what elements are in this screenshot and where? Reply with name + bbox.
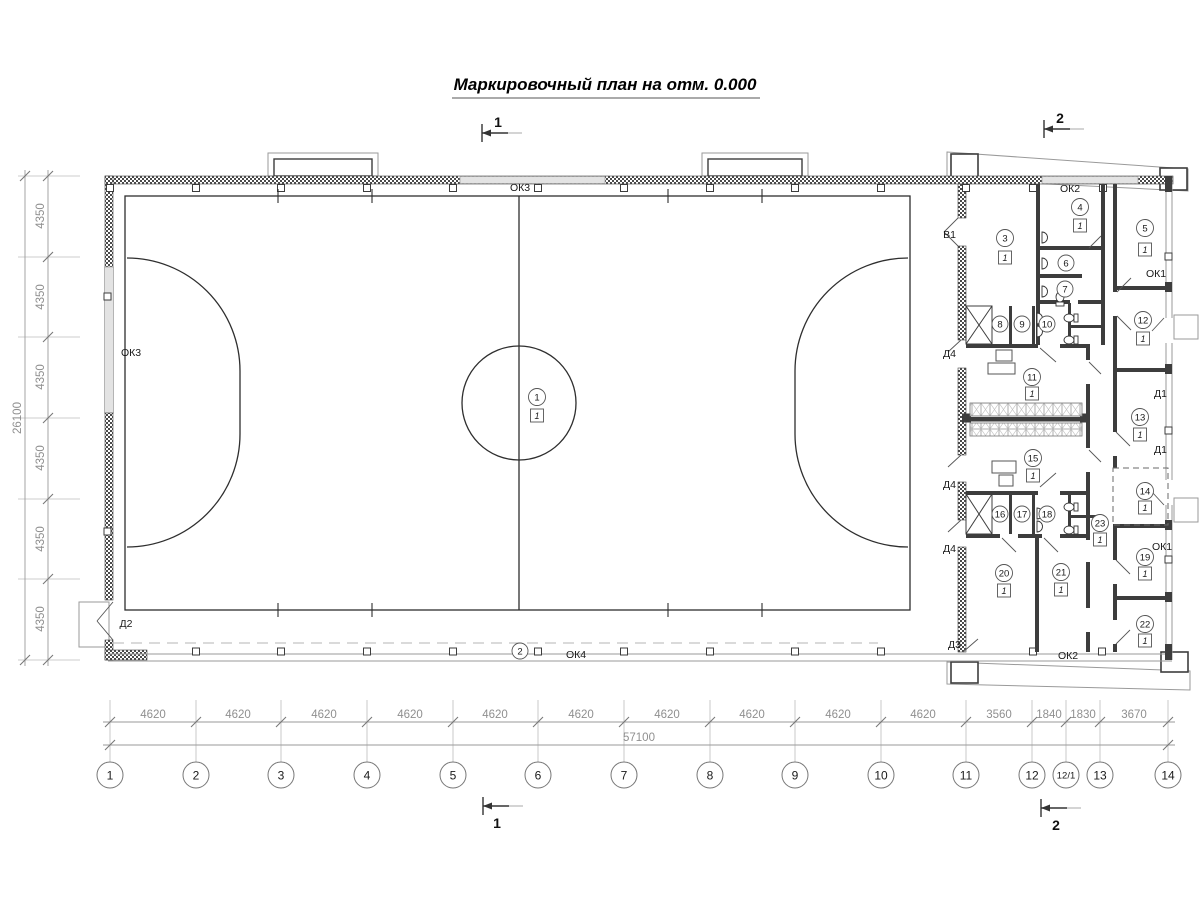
wall-right-pier [1165,176,1172,192]
room-number: 10 [1042,320,1053,331]
extension-lines-left [18,176,80,660]
room-number: 16 [995,510,1006,521]
dim-value: 4620 [225,709,251,721]
court-boundary [125,196,910,610]
label-d4: Д4 [943,479,956,491]
floor-type: 1 [1142,503,1147,513]
room-number: 1 [534,393,539,404]
entrance-canopy-2 [702,153,808,176]
opening-labels: ОК3 ОК3 ОК4 ОК2 ОК2 ОК1 ОК1 В1 Д2 Д3 Д4 … [120,182,1173,662]
room-number: 6 [1063,259,1068,270]
page-title: Маркировочный план на отм. 0.000 [454,75,757,94]
floor-type: 1 [1142,636,1147,646]
floor-type: 1 [1002,253,1007,263]
axis-14: 14 [1155,762,1181,788]
room-marker-8: 8 [992,316,1008,332]
room-number: 3 [1002,234,1007,245]
entrance-canopy-1-inner [274,159,372,176]
dim-value: 4350 [35,203,47,229]
axis-label: 2 [193,769,200,783]
room-number: 5 [1142,224,1147,235]
dim-value: 1830 [1070,709,1096,721]
room-number: 19 [1140,553,1151,564]
axis-label: 8 [707,769,714,783]
toilet [1064,336,1078,344]
axis-2: 2 [183,762,209,788]
label-d4: Д4 [943,543,956,555]
room-marker-21: 21 1 [1053,564,1070,597]
wall-right-pier [1165,644,1172,660]
dim-value: 3560 [986,709,1012,721]
label-ok4: ОК4 [566,649,586,661]
room-marker-6: 6 [1058,255,1074,271]
window-ok3-left [105,267,114,413]
dim-value: 4620 [739,709,765,721]
floor-type: 1 [1058,585,1063,595]
entrance-canopy-2-inner [708,159,802,176]
label-ok2-top: ОК2 [1060,183,1080,195]
toilet [1064,503,1078,511]
room-marker-23: 23 1 [1092,515,1109,547]
room-number: 11 [1027,373,1037,384]
sink [1042,232,1048,243]
room-marker-17: 17 [1014,506,1030,522]
room-number: 15 [1028,454,1039,465]
axis-label: 10 [874,769,888,783]
section-mark-1-top: 1 [482,114,522,142]
dim-total: 26100 [12,402,24,434]
room-number: 23 [1095,519,1106,530]
dim-value: 4350 [35,606,47,632]
dim-value: 4620 [482,709,508,721]
axis-label: 12/1 [1057,771,1076,782]
floor-type: 1 [1097,535,1102,545]
floor-type: 1 [1140,334,1145,344]
room-marker-11: 11 1 [1024,369,1041,401]
toilet [1064,314,1078,322]
axis-12: 12 [1019,762,1045,788]
room-number: 17 [1017,510,1028,521]
dim-value: 4620 [825,709,851,721]
label-d2: Д2 [120,618,133,630]
label-ok3-top: ОК3 [510,182,530,194]
ramp-bottom-right [947,662,1190,690]
window-ok3-top [460,177,605,184]
section-mark-2-bottom: 2 [1041,799,1081,833]
shaft-x-lower [966,494,992,534]
wall-divider [958,368,966,455]
axis-11: 11 [953,762,979,788]
stoop-right-1 [1174,315,1198,339]
floor-type: 1 [1077,221,1082,231]
axis-10: 10 [868,762,894,788]
room-number: 2 [517,647,522,658]
section-mark-1-bottom: 1 [483,797,523,831]
room-marker-14: 14 1 [1137,483,1154,515]
floor-type: 1 [1030,471,1035,481]
sheet-title: Маркировочный план на отм. 0.000 [452,75,760,98]
axis-7: 7 [611,762,637,788]
sink [1042,286,1048,297]
room-marker-13: 13 1 [1132,409,1149,442]
wall-top [105,176,1173,184]
dim-value: 4620 [397,709,423,721]
room-number: 4 [1077,203,1082,214]
label-ok1-upper: ОК1 [1146,268,1166,280]
court-penalty-arc-left [127,258,240,547]
ramp-pad [951,662,978,683]
room-marker-3: 3 1 [997,230,1014,265]
room-marker-5: 5 1 [1137,220,1154,257]
wall-bottom-corner [105,650,147,660]
floor-type: 1 [1142,569,1147,579]
room-marker-7: 7 [1057,281,1073,297]
floor-type: 1 [1142,245,1147,255]
axis-label: 4 [364,769,371,783]
section-mark-2-top: 2 [1044,110,1084,138]
sink [1037,521,1043,532]
room-number: 7 [1062,285,1067,296]
locker-bench-row [970,403,1082,416]
floor-type: 1 [1137,430,1142,440]
dim-value: 3670 [1121,709,1147,721]
dim-value: 4620 [654,709,680,721]
axis-label: 7 [621,769,628,783]
entrance-canopy-1 [268,153,378,176]
room-marker-19: 19 1 [1137,549,1154,581]
axis-label: 11 [960,769,973,783]
axis-8: 8 [697,762,723,788]
room-marker-12: 12 1 [1135,312,1152,346]
court-ticks [278,189,762,617]
sink [1042,258,1048,269]
room-marker-9: 9 [1014,316,1030,332]
sports-court [125,189,910,617]
floor-type: 1 [534,411,539,421]
axis-6: 6 [525,762,551,788]
room-marker-1: 1 1 [529,389,546,423]
dimensions-left: 4350 4350 4350 4350 4350 4350 26100 [12,170,80,666]
label-d1: Д1 [1154,388,1167,400]
room-number: 12 [1138,316,1149,327]
dim-value: 4350 [35,284,47,310]
wall-divider [958,547,966,652]
section-marks: 1 1 2 2 [482,110,1084,833]
dim-value: 4350 [35,526,47,552]
dim-value: 4350 [35,445,47,471]
axis-12-1: 12/1 [1053,762,1079,788]
wall-divider [958,482,966,520]
door-gap-d1-upper [1164,318,1173,343]
label-d1: Д1 [1154,444,1167,456]
drawing-sheet: Маркировочный план на отм. 0.000 1 1 2 [0,0,1200,900]
dim-value: 4620 [140,709,166,721]
axis-3: 3 [268,762,294,788]
toilet [1064,526,1078,534]
room-marker-2: 2 [512,643,528,659]
axis-9: 9 [782,762,808,788]
room-number: 18 [1042,510,1053,521]
locker-bench-row [970,423,1082,436]
axis-label: 14 [1161,769,1175,783]
court-penalty-arc-right [795,258,908,547]
room-marker-20: 20 1 [996,565,1013,598]
axis-label: 9 [792,769,799,783]
stoop-right-2 [1174,498,1198,522]
room-marker-4: 4 1 [1072,199,1089,233]
section-label: 2 [1052,817,1060,833]
room-number: 21 [1056,568,1067,579]
floor-plan-svg: Маркировочный план на отм. 0.000 1 1 2 [0,0,1200,900]
label-d4: Д4 [943,348,956,360]
room-number: 20 [999,569,1010,580]
axis-label: 13 [1093,769,1107,783]
axis-4: 4 [354,762,380,788]
room-number: 8 [997,320,1002,331]
axis-13: 13 [1087,762,1113,788]
section-label: 1 [493,815,501,831]
wall-divider [958,246,966,340]
dim-value: 4620 [568,709,594,721]
window-ok2-top [1042,177,1138,184]
section-label: 1 [494,114,502,130]
axis-label: 5 [450,769,457,783]
axis-5: 5 [440,762,466,788]
shaft-x-upper [966,306,992,344]
ramp-pad [951,154,978,177]
label-ok3-left: ОК3 [121,347,141,359]
axis-1: 1 [97,762,123,788]
axis-bubbles: 1 2 3 4 5 6 7 8 9 10 11 12 12/1 13 14 [97,762,1181,788]
room-marker-10: 10 [1039,316,1055,332]
label-v1: В1 [943,229,956,241]
dim-total: 57100 [623,732,655,744]
label-d3: Д3 [948,639,961,651]
floor-type: 1 [1001,586,1006,596]
room-marker-18: 18 [1039,506,1055,522]
dim-value: 4350 [35,364,47,390]
room-marker-15: 15 1 [1025,450,1042,483]
room-marker-22: 22 1 [1137,616,1154,648]
axis-label: 12 [1025,769,1039,783]
room-number: 22 [1140,620,1151,631]
dim-value: 4620 [910,709,936,721]
section-label: 2 [1056,110,1064,126]
floor-type: 1 [1029,389,1034,399]
label-ok1-lower: ОК1 [1152,541,1172,553]
axis-label: 6 [535,769,542,783]
axis-label: 3 [278,769,285,783]
dim-value: 1840 [1036,709,1062,721]
wall-left [105,413,113,600]
axis-label: 1 [107,769,114,783]
dimensions-bottom: 4620 4620 4620 4620 4620 4620 4620 4620 … [103,700,1175,762]
label-ok2-bottom: ОК2 [1058,650,1078,662]
dim-value: 4620 [311,709,337,721]
room-number: 9 [1019,320,1024,331]
room-number: 14 [1140,487,1151,498]
porch-left [79,602,109,647]
room-marker-16: 16 [992,506,1008,522]
room-number: 13 [1135,413,1146,424]
